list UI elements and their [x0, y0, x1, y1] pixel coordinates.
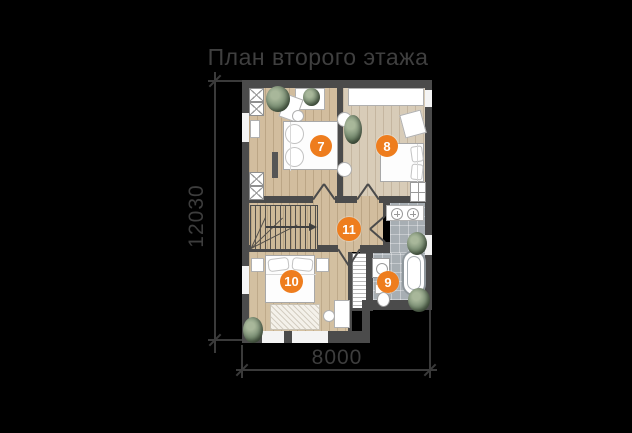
dimension-line-vertical [214, 72, 216, 353]
room-marker-7: 7 [310, 135, 332, 157]
room-marker-8: 8 [376, 135, 398, 157]
plant-icon [243, 317, 263, 343]
page-title: План второго этажа [168, 44, 468, 71]
desk [334, 300, 350, 328]
wall [335, 196, 357, 203]
radiator [250, 120, 260, 138]
nightstand [251, 258, 264, 272]
plant-icon [266, 86, 290, 112]
wardrobe [249, 88, 264, 116]
dimension-extension [241, 345, 243, 378]
window [292, 331, 328, 343]
dimension-label-width: 8000 [287, 346, 387, 370]
plant-icon [407, 232, 427, 255]
plant-icon [303, 88, 320, 106]
floor-plan-image: План второго этажа 12030 8000 [0, 0, 632, 433]
room-marker-10: 10 [280, 270, 303, 293]
stair-direction-arrow [266, 226, 310, 228]
building-plan: 7 8 9 10 11 [242, 80, 432, 343]
stool [323, 310, 335, 322]
rug [270, 304, 320, 330]
wardrobe [249, 172, 264, 200]
window [242, 113, 249, 142]
sink [391, 208, 403, 220]
nightstand [337, 162, 352, 177]
wall [348, 308, 373, 311]
vanity-counter [386, 205, 424, 221]
wall [425, 88, 432, 310]
wall [362, 300, 370, 343]
room-marker-9: 9 [377, 271, 399, 293]
wall [242, 80, 432, 88]
plant-icon [408, 288, 430, 312]
tv-console [272, 152, 278, 178]
window [425, 90, 432, 107]
nightstand [316, 258, 329, 272]
wall [360, 245, 390, 253]
plant-icon [344, 115, 362, 144]
dimension-label-height: 12030 [185, 166, 209, 266]
room-marker-11: 11 [337, 217, 361, 241]
sink [407, 208, 419, 220]
wardrobe [348, 88, 424, 106]
window [242, 266, 249, 294]
window [262, 331, 284, 343]
dresser [410, 182, 426, 202]
